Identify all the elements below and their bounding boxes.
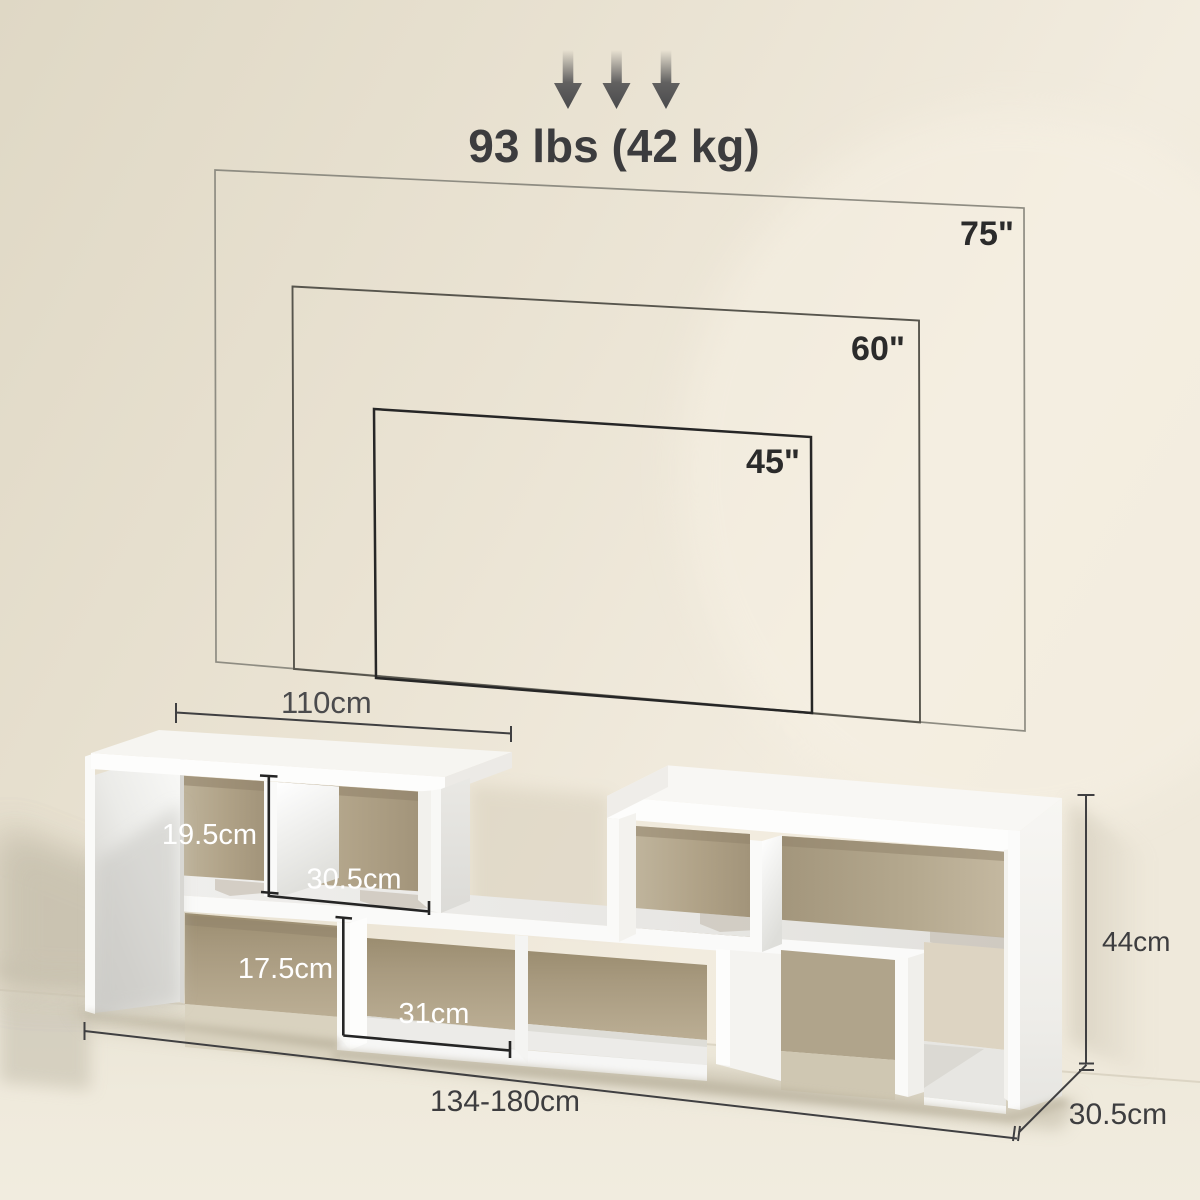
svg-text:30.5cm: 30.5cm [306,864,401,896]
svg-text:93 lbs (42 kg): 93 lbs (42 kg) [468,120,759,172]
svg-text:19.5cm: 19.5cm [162,819,257,851]
svg-text:44cm: 44cm [1102,926,1170,957]
svg-text:75": 75" [960,215,1014,253]
svg-text:31cm: 31cm [399,998,470,1030]
svg-text:60": 60" [851,330,905,368]
svg-text:45": 45" [746,443,800,481]
svg-text:134-180cm: 134-180cm [430,1085,580,1118]
svg-text:110cm: 110cm [281,685,372,720]
svg-text:30.5cm: 30.5cm [1069,1098,1167,1131]
svg-text:17.5cm: 17.5cm [238,953,333,985]
